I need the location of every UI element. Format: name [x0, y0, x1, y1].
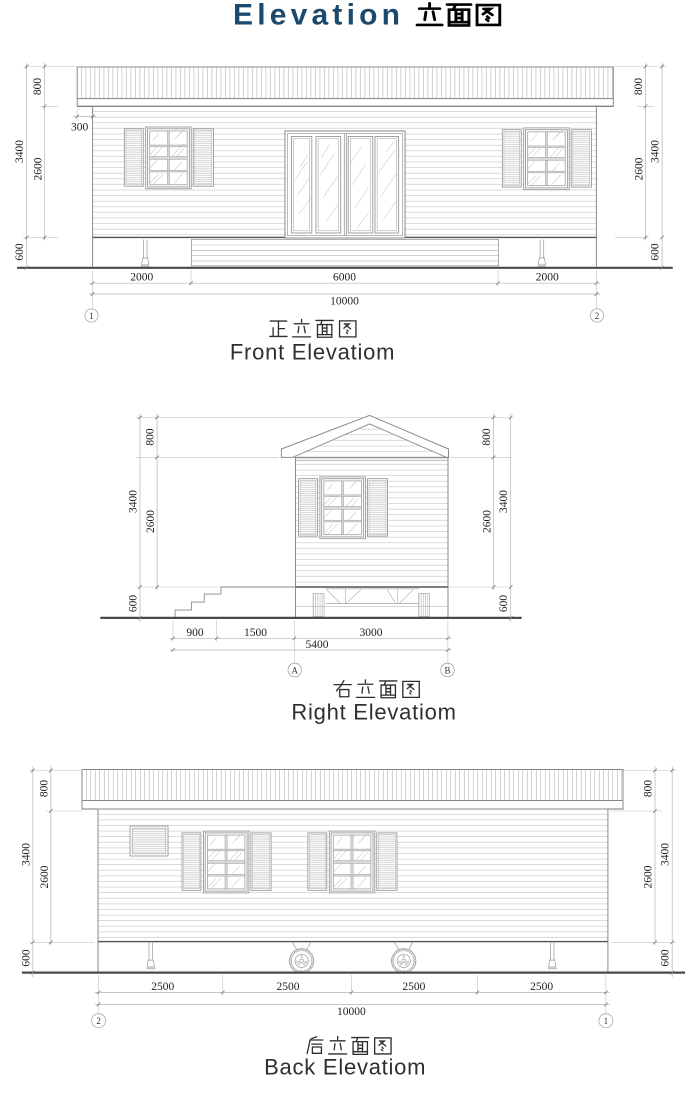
svg-text:2000: 2000: [130, 272, 153, 284]
svg-text:3400: 3400: [20, 843, 32, 866]
svg-text:Right Elevatiom: Right Elevatiom: [291, 700, 456, 725]
svg-text:2600: 2600: [482, 510, 494, 533]
svg-text:300: 300: [71, 122, 89, 134]
svg-text:2000: 2000: [536, 272, 559, 284]
svg-text:3400: 3400: [128, 490, 140, 513]
svg-text:600: 600: [650, 243, 662, 261]
svg-text:Front Elevatiom: Front Elevatiom: [230, 340, 395, 365]
svg-text:3400: 3400: [650, 140, 662, 163]
svg-text:2: 2: [96, 1016, 101, 1026]
svg-text:800: 800: [633, 78, 645, 96]
svg-text:6000: 6000: [333, 272, 356, 284]
svg-text:800: 800: [32, 78, 44, 96]
svg-text:2500: 2500: [151, 981, 174, 993]
svg-text:2500: 2500: [402, 981, 425, 993]
svg-text:800: 800: [643, 780, 655, 798]
svg-text:3400: 3400: [498, 490, 510, 513]
svg-text:2500: 2500: [530, 981, 553, 993]
svg-text:1: 1: [89, 311, 94, 321]
svg-text:2600: 2600: [33, 157, 45, 180]
svg-text:900: 900: [186, 627, 204, 639]
svg-text:1500: 1500: [244, 627, 267, 639]
svg-text:800: 800: [145, 428, 157, 446]
svg-text:2: 2: [595, 311, 600, 321]
svg-text:Elevation: Elevation: [233, 0, 404, 32]
svg-text:2600: 2600: [39, 865, 51, 888]
svg-text:2600: 2600: [145, 510, 157, 533]
svg-text:3400: 3400: [660, 843, 672, 866]
svg-text:B: B: [444, 665, 450, 675]
svg-text:3000: 3000: [360, 627, 383, 639]
svg-text:800: 800: [38, 780, 50, 798]
svg-text:Back Elevatiom: Back Elevatiom: [264, 1055, 426, 1080]
svg-text:5400: 5400: [306, 639, 329, 651]
svg-text:600: 600: [20, 949, 32, 967]
svg-text:800: 800: [481, 428, 493, 446]
svg-text:2500: 2500: [277, 981, 300, 993]
svg-text:2600: 2600: [643, 865, 655, 888]
svg-text:10000: 10000: [330, 296, 359, 308]
svg-text:A: A: [292, 665, 299, 675]
svg-text:3400: 3400: [14, 140, 26, 163]
svg-text:2600: 2600: [634, 157, 646, 180]
svg-text:1: 1: [604, 1016, 609, 1026]
svg-text:10000: 10000: [337, 1006, 366, 1018]
svg-text:600: 600: [660, 949, 672, 967]
svg-text:600: 600: [498, 595, 510, 613]
svg-text:600: 600: [128, 595, 140, 613]
svg-text:600: 600: [14, 243, 26, 261]
